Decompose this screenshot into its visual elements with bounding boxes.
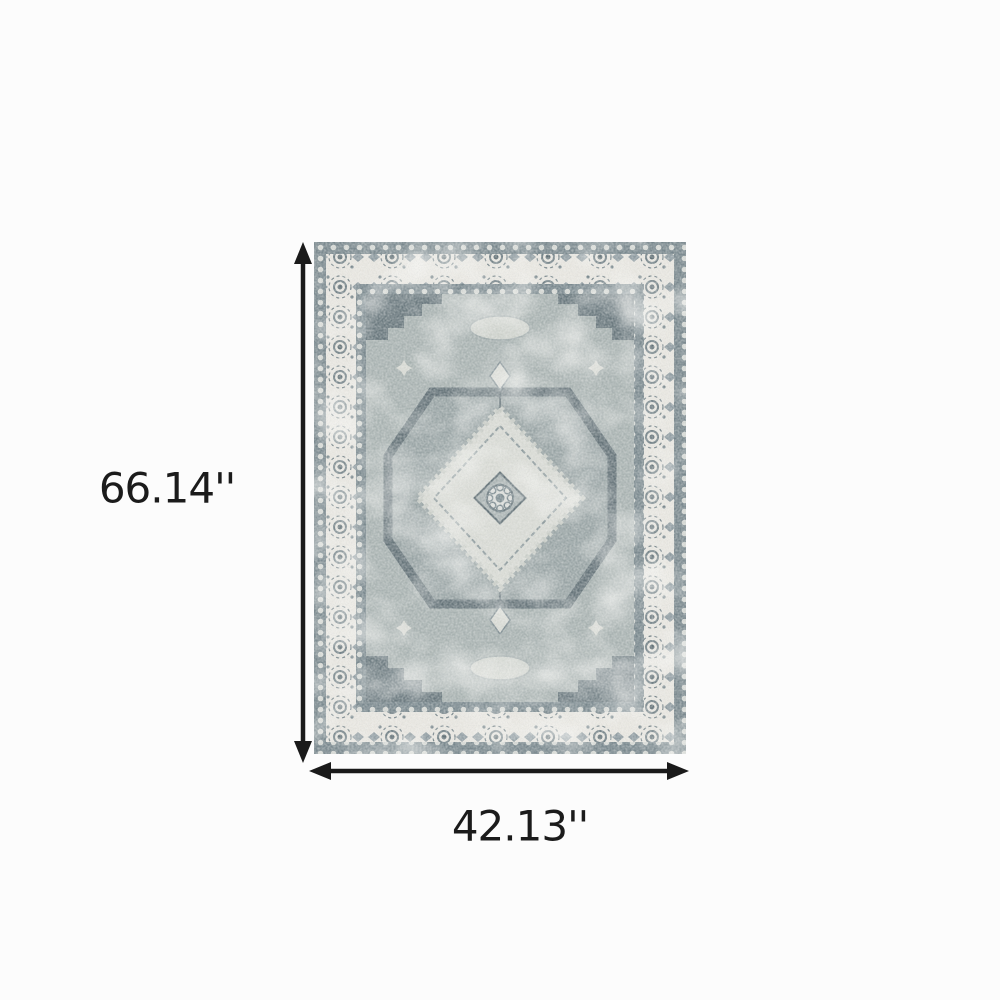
dimension-diagram: 66.14'' 42.13'' bbox=[0, 0, 1000, 1000]
height-arrow bbox=[294, 242, 312, 763]
rug-image bbox=[314, 242, 686, 754]
rug-distress-texture bbox=[314, 242, 686, 754]
width-arrow bbox=[309, 762, 689, 780]
height-dimension-label: 66.14'' bbox=[99, 464, 235, 513]
width-dimension-label: 42.13'' bbox=[452, 802, 588, 851]
